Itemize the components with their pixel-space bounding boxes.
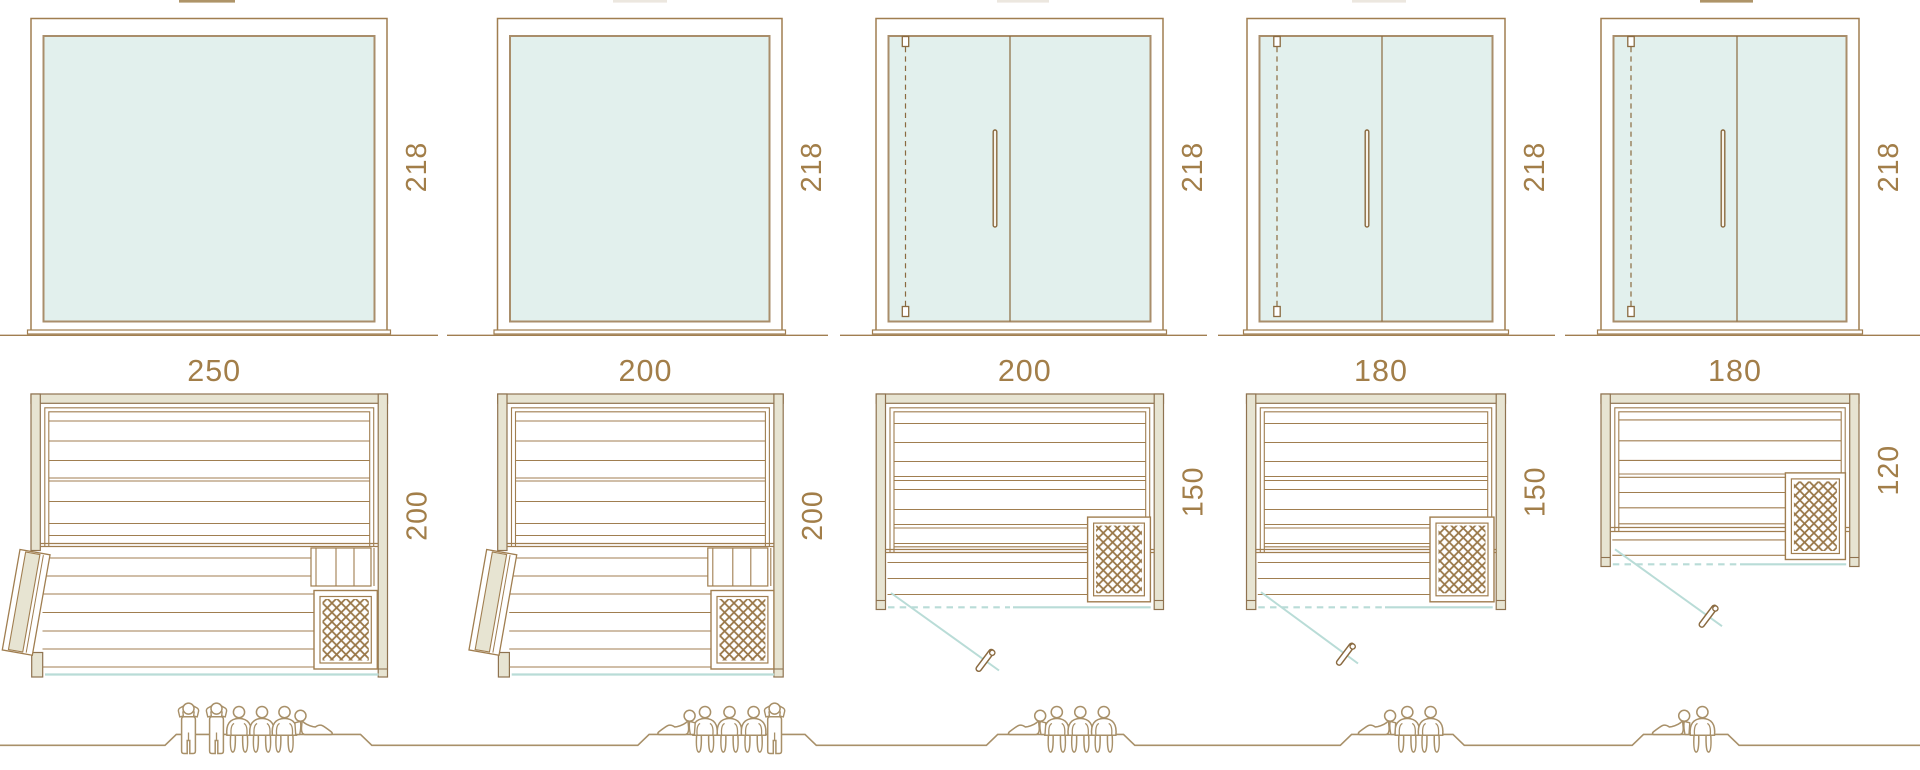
- svg-text:150: 150: [1520, 467, 1552, 518]
- svg-text:150: 150: [1178, 467, 1210, 518]
- svg-text:218: 218: [401, 142, 433, 193]
- svg-text:200: 200: [797, 490, 829, 541]
- svg-text:180: 180: [1354, 354, 1408, 388]
- svg-text:218: 218: [1519, 142, 1551, 193]
- svg-text:218: 218: [796, 142, 828, 193]
- svg-text:180: 180: [1708, 354, 1762, 388]
- svg-text:218: 218: [1177, 142, 1209, 193]
- svg-text:200: 200: [619, 354, 673, 388]
- svg-text:200: 200: [998, 354, 1052, 388]
- svg-text:250: 250: [187, 354, 241, 388]
- svg-text:120: 120: [1873, 445, 1905, 496]
- svg-text:200: 200: [402, 490, 434, 541]
- svg-text:218: 218: [1873, 142, 1905, 193]
